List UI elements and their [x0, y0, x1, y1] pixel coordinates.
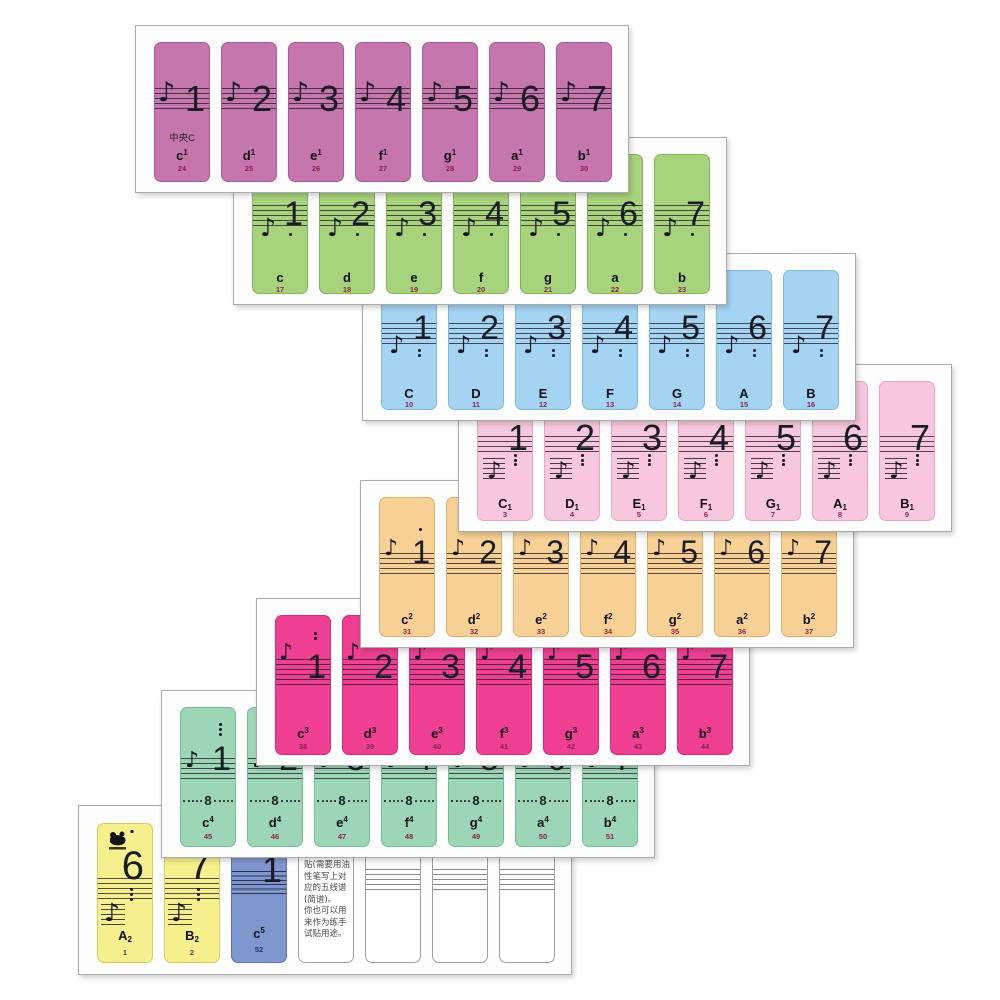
octave-dot [686, 349, 689, 352]
eighth-note-icon: ♪ [185, 750, 199, 772]
note-name-label: B [784, 387, 838, 400]
note-name-label: d [320, 271, 374, 284]
key-number: 23 [655, 286, 709, 294]
octave-dots-below [130, 888, 133, 901]
note-name-label: b [655, 271, 709, 284]
note-name-label: c1 [155, 149, 209, 162]
note-name-label: F [583, 387, 637, 400]
key-number: 17 [253, 286, 307, 294]
octave-dot [557, 233, 560, 236]
octave-script: 1 [317, 148, 321, 157]
key-number: 51 [583, 833, 637, 841]
jianpu-number: 3 [441, 650, 460, 684]
octave-dot [581, 463, 584, 466]
note-name-label: g1 [423, 149, 477, 162]
note-name-label: b3 [678, 727, 732, 740]
octave-dots-below [753, 349, 756, 357]
octave-dot [219, 728, 222, 731]
instruction-line: (简谱)。 [304, 895, 350, 907]
sticker: 7♪B19 [879, 381, 935, 521]
eighth-note-icon: ♪ [585, 538, 599, 560]
octave-dots-below [619, 349, 622, 357]
sticker-sheets-stage: 1♪中央Cc1242♪d1253♪e1264♪f1275♪g1286♪a1297… [0, 0, 1000, 1000]
note-letter: d [243, 148, 251, 163]
note-letter: d [269, 815, 277, 830]
key-number: 11 [449, 401, 503, 409]
key-number: 36 [715, 628, 769, 636]
sticker-sheet-octave-1: 1♪中央Cc1242♪d1253♪e1264♪f1275♪g1286♪a1297… [135, 25, 629, 193]
eighth-note-icon: ♪ [487, 460, 502, 483]
octave-dot [356, 233, 359, 236]
note-name-label: A1 [813, 497, 867, 510]
octave-dots-below [490, 233, 493, 236]
octave-dot [782, 459, 785, 462]
ottava-label: 8 [271, 794, 278, 807]
note-name-label: d2 [447, 613, 501, 626]
note-name-label: g3 [544, 727, 598, 740]
key-number: 29 [490, 165, 544, 173]
key-number: 26 [289, 165, 343, 173]
eighth-note-icon: ♪ [528, 215, 544, 240]
note-name-label: G1 [746, 497, 800, 510]
eighth-note-icon: ♪ [456, 333, 471, 357]
sticker: 6♪a129 [489, 42, 545, 182]
note-letter: g [544, 270, 552, 285]
sticker: 7♪b130 [556, 42, 612, 182]
eighth-note-icon: ♪ [461, 215, 477, 240]
key-number: 46 [248, 833, 302, 841]
octave-dot [289, 233, 292, 236]
key-number: 27 [356, 165, 410, 173]
instruction-text: 贴(需要用油性笔写上对应的五线谱(简谱)。你也可以用来作为练手试贴用途。 [304, 860, 350, 941]
note-name-label: C1 [478, 497, 532, 510]
note-letter: b [604, 815, 612, 830]
octave-script: 2 [194, 935, 198, 944]
jianpu-number: 6 [642, 650, 661, 684]
note-name-label: F1 [679, 497, 733, 510]
eighth-note-icon: ♪ [225, 79, 242, 106]
octave-dot [686, 354, 689, 357]
note-name-label: a3 [611, 727, 665, 740]
note-name-label: g4 [449, 816, 503, 829]
octave-dots-below [418, 349, 421, 357]
note-name-label: g [521, 271, 575, 284]
note-letter: g [565, 726, 573, 741]
note-name-label: e2 [514, 613, 568, 626]
octave-dot [624, 233, 627, 236]
note-letter: F [700, 496, 708, 511]
note-name-label: a [588, 271, 642, 284]
note-letter: f [479, 270, 483, 285]
key-number: 43 [611, 743, 665, 751]
sticker: 1♪c338 [275, 615, 331, 755]
octave-dots-below [356, 233, 359, 236]
octave-dots-below [624, 233, 627, 236]
key-number: 34 [581, 628, 635, 636]
key-number: 22 [588, 286, 642, 294]
note-letter: A [739, 386, 748, 401]
sticker: 1♪中央Cc124 [154, 42, 210, 182]
key-number: 18 [320, 286, 374, 294]
note-name-label: e1 [289, 149, 343, 162]
eighth-note-icon: ♪ [346, 642, 360, 664]
key-number: 16 [784, 401, 838, 409]
note-name-label: A [717, 387, 771, 400]
key-number: 8 [813, 511, 867, 519]
key-number: 25 [222, 165, 276, 173]
key-number: 4 [545, 511, 599, 519]
octave-dot [219, 723, 222, 726]
note-letter: g [470, 815, 478, 830]
octave-dot [820, 354, 823, 357]
note-letter: b [803, 612, 811, 627]
note-letter: d [364, 726, 372, 741]
jianpu-number: 5 [681, 311, 700, 345]
octave-dot [753, 349, 756, 352]
eighth-note-icon: ♪ [394, 215, 410, 240]
jianpu-number: 7 [686, 197, 705, 231]
ottava-8-line: 8 [250, 794, 300, 807]
jianpu-number: 2 [480, 311, 499, 345]
octave-dot [419, 528, 422, 531]
eighth-note-icon: ♪ [786, 538, 800, 560]
key-number: 3 [478, 511, 532, 519]
ottava-8-line: 8 [183, 794, 233, 807]
octave-dots-below [423, 233, 426, 236]
note-letter: b [578, 148, 586, 163]
jianpu-number: 7 [814, 536, 832, 568]
eighth-note-icon: ♪ [158, 79, 175, 106]
middle-c-label: 中央C [155, 134, 209, 144]
octave-script: 3 [438, 726, 442, 735]
key-number: 5 [612, 511, 666, 519]
sticker: 1♪8c445 [180, 707, 236, 847]
jianpu-number: 4 [613, 536, 631, 568]
jianpu-number: 3 [319, 81, 339, 117]
eighth-note-icon: ♪ [451, 538, 465, 560]
key-number: 48 [382, 833, 436, 841]
eighth-note-icon: ♪ [719, 538, 733, 560]
octave-dots-below [485, 349, 488, 357]
eighth-note-icon: ♪ [657, 333, 672, 357]
key-number: 7 [746, 511, 800, 519]
note-name-label: d3 [343, 727, 397, 740]
ottava-label: 8 [405, 794, 412, 807]
octave-dot [715, 459, 718, 462]
note-name-label: C [382, 387, 436, 400]
octave-script: 5 [260, 926, 264, 935]
ottava-8-line: 8 [451, 794, 501, 807]
jianpu-number: 4 [614, 311, 633, 345]
octave-script: 4 [409, 815, 413, 824]
note-letter: b [678, 270, 686, 285]
eighth-note-icon: ♪ [104, 900, 120, 925]
octave-dot [485, 349, 488, 352]
jianpu-number: 3 [547, 311, 566, 345]
jianpu-number: 5 [552, 197, 571, 231]
key-number: 44 [678, 743, 732, 751]
octave-script: 3 [639, 726, 643, 735]
key-number: 33 [514, 628, 568, 636]
octave-script: 2 [408, 612, 412, 621]
octave-script: 1 [383, 148, 387, 157]
jianpu-number: 2 [575, 420, 595, 456]
note-name-label: a2 [715, 613, 769, 626]
jianpu-number: 2 [252, 81, 272, 117]
note-name-label: E [516, 387, 570, 400]
note-letter: E [539, 386, 548, 401]
octave-dots-above [314, 632, 317, 640]
note-name-label: E1 [612, 497, 666, 510]
note-name-label: g2 [648, 613, 702, 626]
key-number: 10 [382, 401, 436, 409]
octave-script: 3 [573, 726, 577, 735]
key-number: 28 [423, 165, 477, 173]
octave-script: 1 [452, 148, 456, 157]
octave-dots-below [557, 233, 560, 236]
note-name-label: f4 [382, 816, 436, 829]
key-number: 12 [516, 401, 570, 409]
note-name-label: f2 [581, 613, 635, 626]
eighth-note-icon: ♪ [426, 79, 443, 106]
eighth-note-icon: ♪ [889, 460, 904, 483]
sticker: 7♪b23 [654, 154, 710, 294]
octave-dot [130, 893, 133, 896]
eighth-note-icon: ♪ [554, 460, 569, 483]
key-number: 45 [181, 833, 235, 841]
jianpu-number: 4 [485, 197, 504, 231]
eighth-note-icon: ♪ [523, 333, 538, 357]
ottava-label: 8 [539, 794, 546, 807]
note-letter: d [468, 612, 476, 627]
octave-dot [782, 463, 785, 466]
note-name-label: B2 [165, 929, 219, 942]
octave-script: 3 [707, 726, 711, 735]
octave-dot [552, 349, 555, 352]
octave-dot [648, 459, 651, 462]
octave-dot [418, 354, 421, 357]
note-name-label: e3 [410, 727, 464, 740]
instruction-line: 来作为练手 [304, 918, 350, 930]
key-number: 9 [880, 511, 934, 519]
key-number: 50 [516, 833, 570, 841]
jianpu-number: 3 [418, 197, 437, 231]
octave-script: 3 [372, 726, 376, 735]
eighth-note-icon: ♪ [359, 79, 376, 106]
octave-dot [197, 893, 200, 896]
jianpu-number: 6 [747, 536, 765, 568]
note-name-label: b2 [782, 613, 836, 626]
jianpu-number: 4 [709, 420, 729, 456]
octave-dot [849, 463, 852, 466]
ottava-8-line: 8 [518, 794, 568, 807]
octave-script: 4 [544, 815, 548, 824]
key-number: 19 [387, 286, 441, 294]
key-number: 52 [232, 946, 286, 954]
octave-dots-below [686, 349, 689, 357]
key-number: 6 [679, 511, 733, 519]
ottava-label: 8 [338, 794, 345, 807]
jianpu-number: 6 [520, 81, 540, 117]
key-number: 2 [165, 949, 219, 957]
note-letter: C [404, 386, 413, 401]
key-number: 32 [447, 628, 501, 636]
octave-script: 2 [811, 612, 815, 621]
eighth-note-icon: ♪ [327, 215, 343, 240]
octave-dot [423, 233, 426, 236]
eighth-note-icon: ♪ [260, 215, 276, 240]
jianpu-number: 1 [307, 650, 326, 684]
octave-dot [820, 349, 823, 352]
note-letter: e [410, 270, 417, 285]
octave-dot [916, 463, 919, 466]
octave-dot [197, 888, 200, 891]
eighth-note-icon: ♪ [662, 215, 678, 240]
key-number: 20 [454, 286, 508, 294]
eighth-note-icon: ♪ [822, 460, 837, 483]
eighth-note-icon: ♪ [560, 79, 577, 106]
eighth-note-icon: ♪ [791, 333, 806, 357]
note-name-label: d4 [248, 816, 302, 829]
key-number: 15 [717, 401, 771, 409]
eighth-note-icon: ♪ [384, 538, 398, 560]
octave-dot [514, 459, 517, 462]
octave-script: 4 [277, 815, 281, 824]
key-number: 21 [521, 286, 575, 294]
octave-dot [753, 354, 756, 357]
note-letter: a [611, 270, 618, 285]
octave-script: 4 [478, 815, 482, 824]
instruction-line: 试贴用途。 [304, 929, 350, 941]
eighth-note-icon: ♪ [724, 333, 739, 357]
instruction-line: 性笔写上对 [304, 872, 350, 884]
octave-dots-below [820, 349, 823, 357]
staff-lines [366, 869, 420, 892]
note-name-label: a4 [516, 816, 570, 829]
octave-script: 1 [183, 148, 187, 157]
ottava-8-line: 8 [317, 794, 367, 807]
note-name-label: c4 [181, 816, 235, 829]
octave-dots-below [197, 888, 200, 901]
key-number: 42 [544, 743, 598, 751]
eighth-note-icon: ♪ [590, 333, 605, 357]
eighth-note-icon: ♪ [493, 79, 510, 106]
note-name-label: f3 [477, 727, 531, 740]
octave-script: 1 [251, 148, 255, 157]
note-name-label: d1 [222, 149, 276, 162]
eighth-note-icon: ♪ [595, 215, 611, 240]
note-name-label: a1 [490, 149, 544, 162]
jianpu-number: 6 [619, 197, 638, 231]
note-name-label: B1 [880, 497, 934, 510]
key-number: 37 [782, 628, 836, 636]
jianpu-number: 1 [284, 197, 303, 231]
octave-script: 2 [127, 935, 131, 944]
octave-dot [648, 463, 651, 466]
note-name-label: e4 [315, 816, 369, 829]
eighth-note-icon: ♪ [292, 79, 309, 106]
note-name-label: c [253, 271, 307, 284]
octave-dot [715, 463, 718, 466]
jianpu-number: 6 [748, 311, 767, 345]
note-letter: d [343, 270, 351, 285]
key-number: 24 [155, 165, 209, 173]
eighth-note-icon: ♪ [279, 642, 293, 664]
eighth-note-icon: ♪ [389, 333, 404, 357]
sticker: 5♪g128 [422, 42, 478, 182]
octave-dot [849, 459, 852, 462]
sticker: 1♪c231 [379, 497, 435, 637]
note-letter: G [766, 496, 776, 511]
eighth-note-icon: ♪ [688, 460, 703, 483]
octave-dots-below [289, 233, 292, 236]
note-letter: c [276, 270, 283, 285]
note-name-label: D [449, 387, 503, 400]
key-number: 14 [650, 401, 704, 409]
eighth-note-icon: ♪ [171, 900, 187, 925]
sticker: 2♪d125 [221, 42, 277, 182]
octave-script: 4 [343, 815, 347, 824]
note-name-label: b4 [583, 816, 637, 829]
jianpu-number: 7 [587, 81, 607, 117]
octave-script: 2 [743, 612, 747, 621]
jianpu-number: 7 [815, 311, 834, 345]
sticker: 6♪A21 [97, 823, 153, 963]
note-letter: b [699, 726, 707, 741]
octave-dot [490, 233, 493, 236]
octave-dot [219, 733, 222, 736]
note-name-label: f1 [356, 149, 410, 162]
jianpu-number: 1 [413, 311, 432, 345]
ottava-8-line: 8 [384, 794, 434, 807]
key-number: 30 [557, 165, 611, 173]
jianpu-number: 4 [386, 81, 406, 117]
key-number: 35 [648, 628, 702, 636]
jianpu-number: 1 [508, 420, 528, 456]
key-number: 31 [380, 628, 434, 636]
note-name-label: c5 [232, 927, 286, 940]
octave-dot [485, 354, 488, 357]
eighth-note-icon: ♪ [518, 538, 532, 560]
key-number: 1 [98, 949, 152, 957]
key-number: 40 [410, 743, 464, 751]
sticker: 7♪B16 [783, 270, 839, 410]
jianpu-number: 2 [351, 197, 370, 231]
note-name-label: f [454, 271, 508, 284]
note-name-label: G [650, 387, 704, 400]
octave-dot [691, 233, 694, 236]
note-name-label: D1 [545, 497, 599, 510]
ottava-label: 8 [204, 794, 211, 807]
note-letter: G [672, 386, 682, 401]
octave-dot [314, 632, 317, 635]
key-number: 49 [449, 833, 503, 841]
note-name-label: A2 [98, 929, 152, 942]
jianpu-number: 1 [212, 742, 231, 776]
jianpu-number: 3 [642, 420, 662, 456]
octave-script: 1 [518, 148, 522, 157]
note-letter: B [806, 386, 815, 401]
note-name-label: c2 [380, 613, 434, 626]
key-number: 13 [583, 401, 637, 409]
octave-dot [552, 354, 555, 357]
ottava-8-line: 8 [585, 794, 635, 807]
sticker: 3♪e126 [288, 42, 344, 182]
jianpu-number: 3 [546, 536, 564, 568]
octave-dot [581, 459, 584, 462]
octave-script: 2 [542, 612, 546, 621]
jianpu-number: 4 [508, 650, 527, 684]
